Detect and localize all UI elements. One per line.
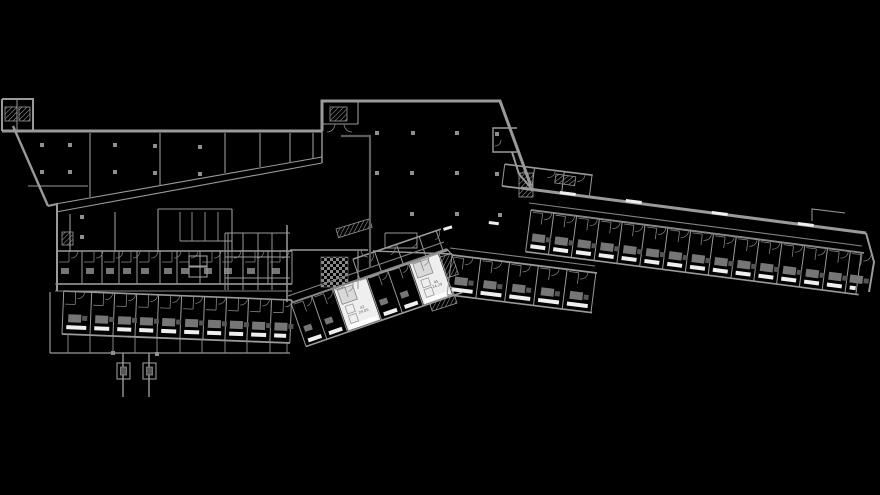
window-dash-rect (489, 221, 499, 225)
window-strip (184, 330, 199, 335)
stair-hatch-rect (330, 107, 347, 121)
furniture-symbol (805, 269, 819, 279)
column-marker (68, 170, 72, 174)
room-divider (62, 291, 64, 334)
stair-hatch (336, 219, 372, 238)
furniture-symbol (86, 268, 94, 274)
furniture-symbol (468, 280, 474, 286)
column-marker (410, 171, 414, 175)
room-divider (396, 244, 403, 265)
column-marker (113, 143, 117, 147)
stair-hatch-rect (19, 107, 30, 121)
furniture-symbol (797, 270, 803, 276)
column-footing-core (121, 367, 127, 375)
wall (56, 163, 322, 212)
elevator-shaft (189, 256, 207, 266)
window-strip (161, 329, 176, 334)
room-divider (617, 222, 622, 264)
bathroom-pod (784, 245, 794, 246)
bathroom-pod (624, 224, 634, 225)
bathroom-pod (379, 275, 383, 285)
window-strip (644, 259, 659, 265)
furniture-symbol (82, 316, 87, 321)
column-footing-core (147, 367, 153, 375)
bathroom-pod (260, 299, 261, 312)
door-arc (150, 294, 157, 301)
bathroom-pod (283, 300, 284, 313)
column-marker (40, 143, 44, 147)
window-strip (509, 294, 530, 301)
door-arc (795, 245, 803, 253)
door-arc (344, 124, 352, 132)
window-strip (781, 277, 796, 283)
floor-plan-canvas: 4224.054524.29 (0, 0, 880, 495)
bathroom-pod (747, 240, 748, 251)
room-divider (845, 251, 850, 293)
furniture-symbol (61, 268, 69, 274)
column-marker (155, 352, 159, 356)
furniture-symbol (783, 266, 797, 276)
furniture-symbol (118, 316, 131, 325)
furniture-symbol (379, 297, 389, 305)
column-marker (80, 215, 84, 219)
door-arc (840, 251, 848, 259)
bathroom-pod (533, 212, 543, 213)
furniture-symbol (272, 268, 280, 274)
door-arc (547, 171, 555, 179)
window-strip (139, 328, 153, 333)
furniture-symbol (849, 274, 863, 284)
column-marker (80, 235, 84, 239)
furniture-symbol (199, 320, 204, 325)
window-dash (443, 225, 452, 231)
furniture-symbol (842, 275, 848, 281)
wall (48, 204, 57, 291)
door-arc (749, 239, 757, 247)
bathroom-pod (655, 228, 656, 239)
door-arc (151, 251, 158, 258)
column-marker (455, 131, 459, 135)
furniture-symbol (247, 268, 255, 274)
door-arc (544, 213, 552, 221)
door-arc (191, 251, 198, 258)
column-marker (153, 144, 157, 148)
door-arc (658, 228, 666, 236)
door-arc (772, 242, 780, 250)
furniture-symbol (668, 251, 682, 261)
wing-west-upper-rooms (57, 251, 292, 284)
furniture-symbol (591, 243, 597, 249)
window-dash-rect (443, 225, 452, 231)
door-arc (128, 294, 135, 301)
room-divider (203, 297, 205, 340)
furniture-symbol (141, 268, 149, 274)
door-arc (522, 265, 530, 273)
room-divider (387, 270, 402, 313)
bathroom-pod (738, 239, 748, 240)
furniture-symbol (324, 316, 334, 324)
column-marker (111, 351, 115, 355)
window-strip (251, 332, 266, 337)
bathroom-pod (324, 294, 328, 304)
wing-inner-wall (64, 291, 292, 300)
window-strip (553, 247, 568, 253)
stair-hatch-rect (62, 232, 73, 245)
bathroom-pod (632, 225, 633, 236)
room-divider (270, 299, 272, 342)
furniture-symbol (68, 314, 81, 323)
door-arc (681, 230, 689, 238)
stair-hatch (330, 107, 347, 121)
door-arc (580, 272, 588, 280)
furniture-symbol (106, 268, 114, 274)
door-arc (551, 268, 559, 276)
bathroom-pod (399, 268, 403, 278)
door-arc (218, 297, 225, 304)
window-strip (94, 326, 109, 331)
window-strip (538, 298, 559, 305)
furniture-symbol (512, 284, 526, 294)
window-strip (480, 291, 501, 298)
stair-hatch (19, 107, 30, 121)
room-divider (505, 262, 510, 302)
door-arc (240, 298, 247, 305)
bathroom-pod (103, 293, 104, 306)
stair-hatch (62, 232, 73, 245)
tiled-floor (321, 257, 348, 287)
furniture-symbol (266, 323, 271, 328)
door-arc (105, 293, 112, 300)
bathroom-pod (569, 272, 579, 273)
bathroom-pod (578, 218, 588, 219)
furniture-symbol (154, 319, 159, 324)
room-divider (799, 245, 804, 287)
bathroom-pod (549, 269, 550, 280)
column-marker (68, 143, 72, 147)
furniture-symbol (637, 249, 643, 255)
bathroom-pod (577, 273, 578, 284)
furniture-symbol (863, 278, 869, 284)
window-strip (667, 262, 682, 268)
stair-hatch (5, 107, 17, 121)
window-strip (804, 280, 819, 286)
door-arc (589, 219, 597, 227)
furniture-symbol (737, 260, 751, 270)
wing-middle-wing-rooms: 4224.054524.29 (291, 249, 462, 346)
room-divider (708, 234, 713, 276)
room-divider (685, 231, 690, 273)
room-divider (548, 213, 553, 255)
window-strip (452, 287, 473, 294)
furniture-symbol (109, 317, 114, 322)
window-strip (567, 302, 588, 309)
furniture-symbol (208, 320, 221, 329)
furniture-symbol (682, 255, 688, 261)
furniture-symbol (132, 318, 137, 323)
room-divider (419, 237, 426, 258)
door-arc (635, 225, 643, 233)
room-divider (290, 300, 292, 343)
room-divider (90, 292, 92, 335)
furniture-symbol (828, 272, 842, 282)
door-arc (172, 295, 179, 302)
furniture-symbol (714, 257, 728, 267)
window-strip (690, 265, 705, 271)
walls-layer (2, 99, 874, 397)
bathroom-pod (564, 216, 565, 227)
furniture-symbol (646, 248, 660, 258)
column-marker (153, 171, 157, 175)
wall (50, 157, 322, 205)
column-marker (40, 170, 44, 174)
furniture-symbol (705, 258, 711, 264)
room-divider (777, 242, 782, 284)
column-marker (198, 145, 202, 149)
door-arc (494, 261, 502, 269)
bathroom-pod (692, 233, 702, 234)
furniture-symbol (774, 267, 780, 273)
column-marker (455, 212, 459, 216)
door-arc (195, 296, 202, 303)
door-arc (567, 216, 575, 224)
furniture-symbol (483, 280, 497, 290)
room-divider (640, 225, 645, 267)
window-dash (489, 221, 499, 225)
furniture-symbol (497, 284, 503, 290)
furniture-symbol (204, 268, 212, 274)
column-marker (495, 172, 499, 176)
room-divider (375, 252, 382, 273)
furniture-symbol (526, 287, 532, 293)
bathroom-pod (647, 227, 657, 228)
bathroom-pod (541, 214, 542, 225)
furniture-symbol (222, 321, 227, 326)
bathroom-pod (540, 268, 550, 269)
door-arc (465, 258, 473, 266)
furniture-symbol (760, 263, 774, 273)
bathroom-pod (148, 294, 149, 307)
furniture-symbol (555, 291, 561, 297)
room-divider (533, 266, 538, 306)
door-arc (327, 124, 335, 132)
furniture-symbol (819, 273, 825, 279)
bathroom-pod (701, 234, 702, 245)
window-strip (849, 285, 855, 290)
room-divider (113, 293, 115, 336)
wing-south-west-rooms (62, 291, 295, 343)
furniture-symbol (164, 268, 172, 274)
room-divider (822, 248, 827, 290)
window-strip (576, 250, 591, 256)
furniture-symbol (546, 237, 552, 243)
bathroom-pod (610, 222, 611, 233)
bathroom-pod (511, 264, 521, 265)
room-divider (731, 237, 736, 279)
furniture-symbol (400, 290, 410, 298)
column-marker (113, 170, 117, 174)
furniture-symbol (600, 242, 614, 252)
stair-hatch-rect (336, 219, 372, 238)
bathroom-pod (238, 298, 239, 311)
room-divider (589, 175, 592, 197)
bathroom-pod (454, 257, 464, 258)
room-divider (247, 298, 249, 341)
furniture-symbol (185, 319, 198, 328)
bathroom-pod (193, 296, 194, 309)
stair-hatch-rect (5, 107, 17, 121)
bathroom-pod (829, 251, 839, 252)
bathroom-pod (75, 292, 76, 305)
bathroom-pod (761, 242, 771, 243)
bathroom-pod (126, 294, 127, 307)
bathroom-pod (769, 243, 770, 254)
furniture-symbol (303, 324, 313, 332)
furniture-symbol (541, 287, 555, 297)
furniture-symbol (123, 268, 131, 274)
room-divider (312, 296, 327, 339)
bathroom-pod (715, 236, 725, 237)
door-arc (726, 236, 734, 244)
furniture-symbol (274, 322, 287, 331)
furniture-symbol (728, 261, 734, 267)
window-strip (599, 253, 614, 259)
room-divider (591, 273, 596, 313)
column-marker (410, 212, 414, 216)
bathroom-pod (815, 249, 816, 260)
room-divider (180, 296, 182, 339)
room-divider (502, 164, 505, 186)
floor-plan-page: 4224.054524.29 (0, 0, 880, 495)
window-strip (530, 244, 545, 250)
door-arc (818, 248, 826, 256)
furniture-symbol (568, 240, 574, 246)
door-arc (863, 254, 871, 262)
stair-hatch-rect (555, 174, 576, 186)
stair-hatch (555, 174, 576, 186)
furniture-symbol (583, 295, 589, 301)
room-divider (157, 295, 159, 338)
window-strip (735, 271, 750, 277)
furniture-symbol (454, 277, 468, 287)
bathroom-pod (806, 248, 816, 249)
furniture-symbol (577, 239, 591, 249)
furniture-symbol (252, 321, 265, 330)
door-arc (577, 174, 585, 182)
column-marker (498, 213, 502, 217)
furniture-symbol (751, 264, 757, 270)
bathroom-pod (678, 231, 679, 242)
bathroom-pod (520, 266, 521, 277)
door-arc (262, 299, 269, 306)
room-divider (526, 210, 531, 252)
window-strip (117, 327, 131, 332)
window-strip (827, 283, 842, 289)
room-divider (353, 259, 360, 280)
room-divider (571, 216, 576, 258)
column-marker (411, 131, 415, 135)
furniture-symbol (660, 252, 666, 258)
column-marker (375, 131, 379, 135)
room-wings-layer: 4224.054524.29 (57, 164, 872, 346)
bathroom-pod (216, 297, 217, 310)
furniture-symbol (176, 319, 181, 324)
wall (812, 209, 845, 221)
column-marker (198, 172, 202, 176)
window-strip (758, 274, 773, 280)
furniture-symbol (691, 254, 705, 264)
door-arc (495, 140, 501, 146)
furniture-symbol (614, 246, 620, 252)
window-strip (713, 268, 728, 274)
bathroom-pod (838, 252, 839, 263)
window-strip (274, 333, 286, 337)
furniture-symbol (181, 268, 189, 274)
bathroom-pod (724, 237, 725, 248)
furniture-symbol (162, 318, 175, 327)
bathroom-pod (670, 230, 680, 231)
window-strip (66, 325, 86, 330)
door-arc (77, 292, 84, 299)
furniture-symbol (554, 236, 568, 246)
furniture-symbol (569, 291, 583, 301)
room-divider (856, 253, 861, 295)
bathroom-pod (303, 301, 307, 311)
furniture-symbol (532, 233, 546, 243)
door-arc (71, 251, 78, 258)
column-marker (375, 171, 379, 175)
room-divider (562, 269, 567, 309)
bathroom-pod (491, 262, 492, 273)
window-strip (621, 256, 636, 262)
furniture-symbol (288, 324, 293, 329)
wall (13, 126, 48, 206)
room-divider (225, 297, 227, 340)
bathroom-pod (483, 261, 493, 262)
wall (385, 233, 417, 248)
window-strip (207, 331, 221, 336)
bathroom-pod (587, 219, 588, 230)
room-divider (476, 259, 481, 299)
door-arc (704, 233, 712, 241)
door-arc (612, 222, 620, 230)
bathroom-pod (462, 258, 463, 269)
bathroom-pod (601, 221, 611, 222)
room-divider (135, 294, 137, 337)
furniture-symbol (623, 245, 637, 255)
furniture-symbol (95, 315, 108, 324)
furniture-symbol (140, 317, 153, 326)
bathroom-pod (792, 246, 793, 257)
room-divider (662, 228, 667, 270)
furniture-symbol (230, 321, 243, 330)
bathroom-pod (170, 295, 171, 308)
column-marker (455, 171, 459, 175)
room-divider (594, 219, 599, 261)
window-strip (229, 332, 243, 337)
room-divider (754, 239, 759, 281)
column-marker (495, 132, 499, 136)
joint-line (341, 136, 370, 268)
bathroom-pod (852, 253, 862, 254)
furniture-symbol (244, 322, 249, 327)
bathroom-pod (556, 215, 566, 216)
